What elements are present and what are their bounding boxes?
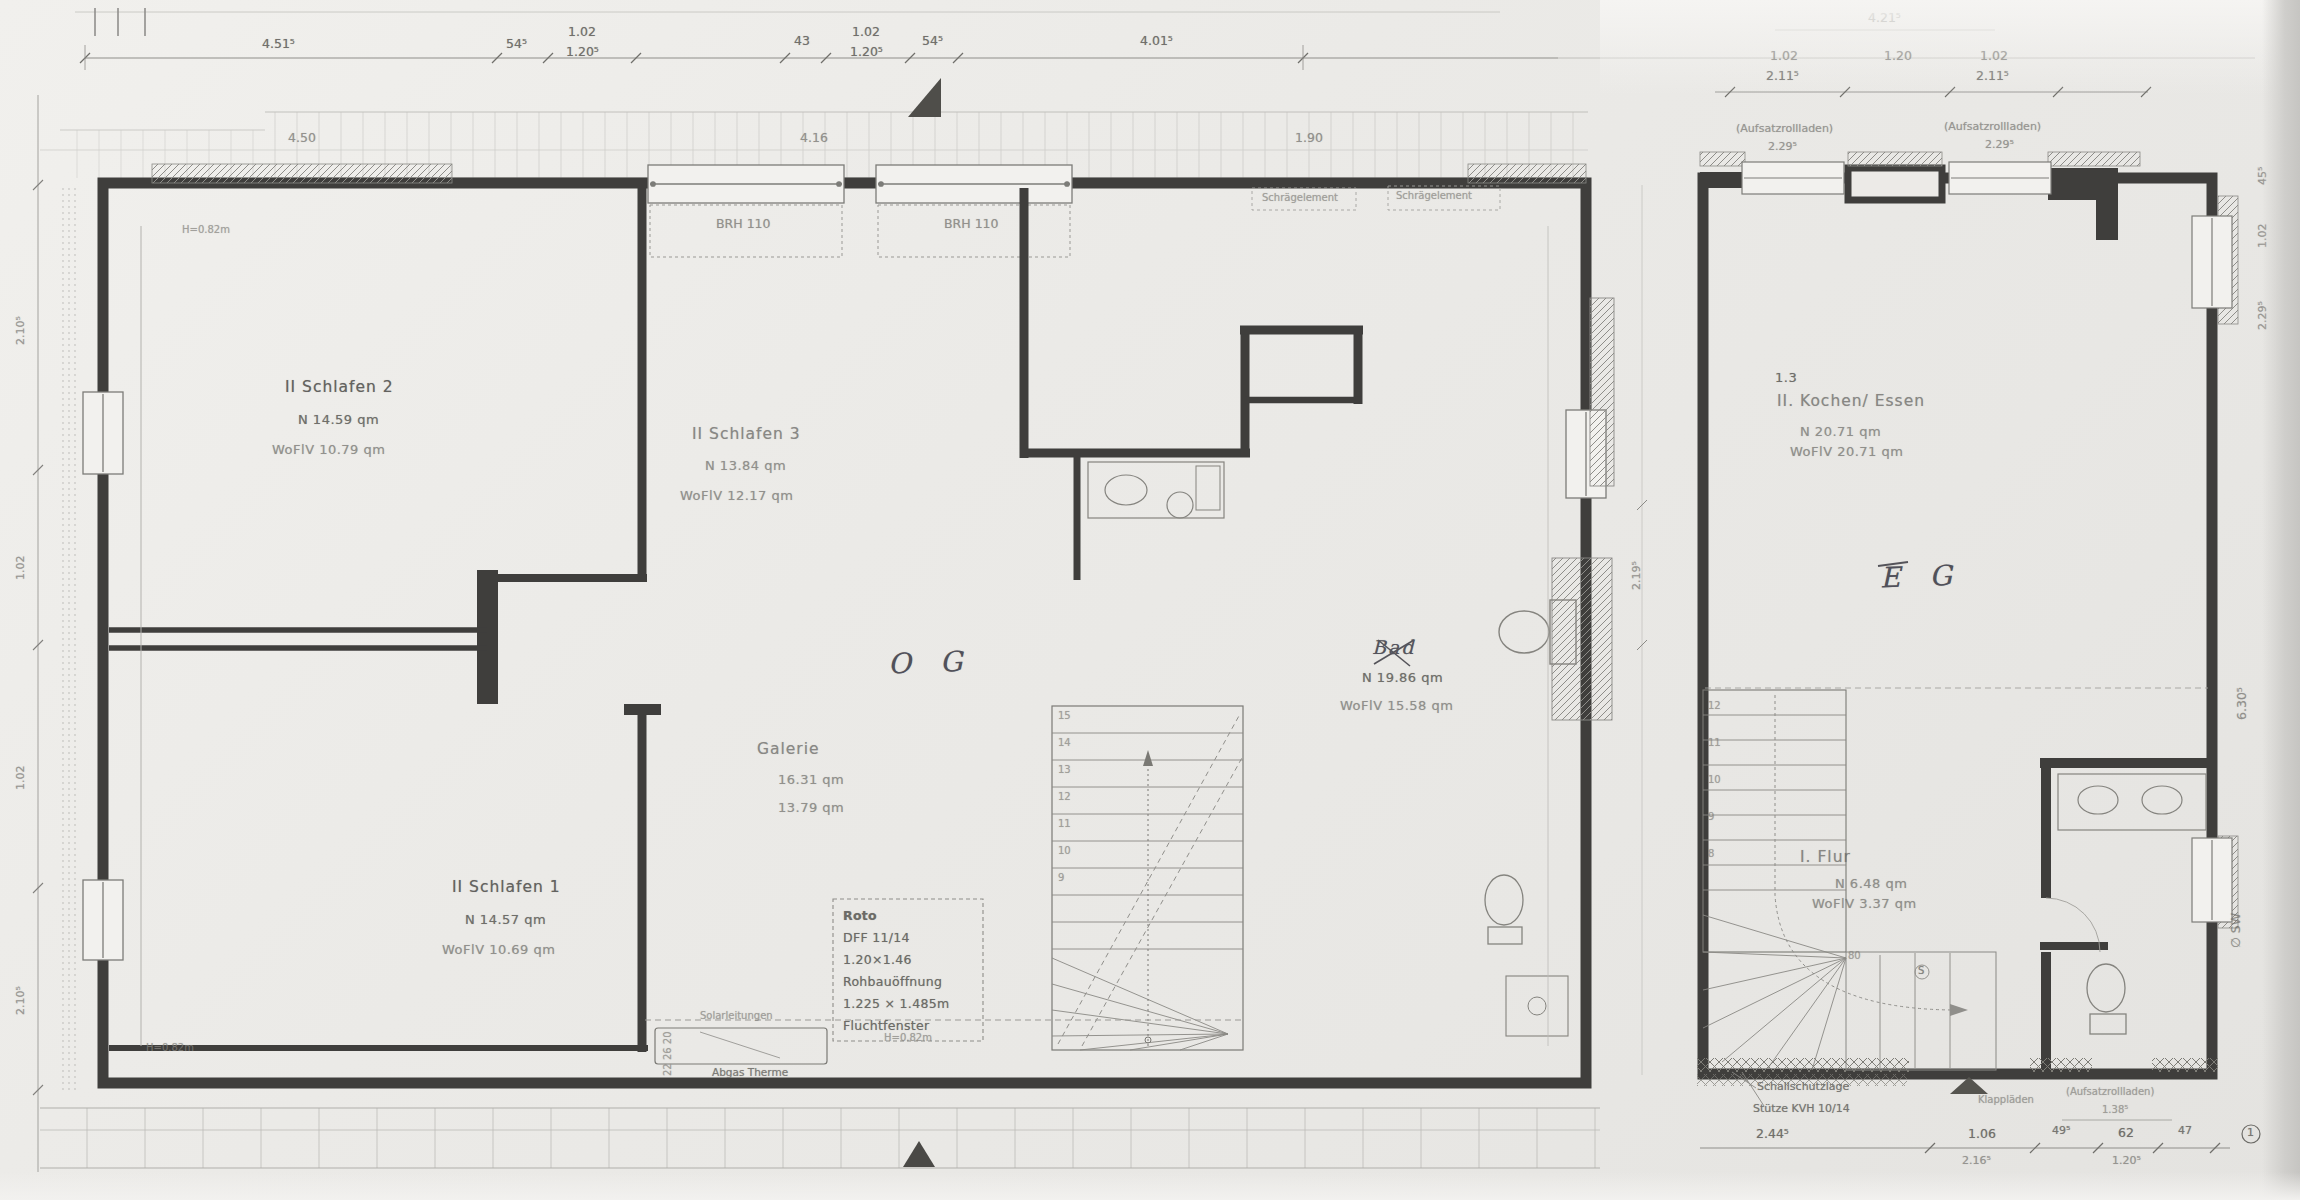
og-room-schlafen2-name: II Schlafen 2 bbox=[285, 378, 394, 396]
og-dim-top-1: 4.51⁵ bbox=[262, 36, 295, 51]
roto-note-line3: 1.20×1.46 bbox=[843, 952, 912, 967]
eg-stair-step-8: 8 bbox=[1708, 848, 1714, 859]
eg-dim-bottom-3: 49⁵ bbox=[2052, 1124, 2070, 1137]
eg-note-schallschutz-2: Stütze KVH 10/14 bbox=[1753, 1102, 1850, 1115]
mid-dimension-column bbox=[1637, 185, 1647, 1075]
eg-dim-right-2: 1.02 bbox=[2256, 224, 2269, 249]
eg-stair-step-11: 11 bbox=[1708, 737, 1721, 748]
eg-dim-top-row1: 4.21⁵ bbox=[1868, 10, 1901, 25]
og-room-schlafen3-woflv: WoFlV 12.17 qm bbox=[680, 488, 793, 503]
og-room-schlafen1-name: II Schlafen 1 bbox=[452, 878, 561, 896]
eg-dim-bottom-row2-1: 2.16⁵ bbox=[1962, 1154, 1991, 1167]
roto-note-line6: Fluchtfenster bbox=[843, 1018, 929, 1033]
og-note-kniestock-left-top: H=0.82m bbox=[182, 224, 230, 235]
eg-stair-note-s: S bbox=[1918, 965, 1924, 976]
eg-interior-walls bbox=[1705, 688, 2212, 1074]
og-room-schlafen1-area: N 14.57 qm bbox=[465, 912, 546, 927]
og-room-bad-area: N 19.86 qm bbox=[1362, 670, 1443, 685]
eg-room-kochen-woflv: WoFlV 20.71 qm bbox=[1790, 444, 1903, 459]
og-stair-step-13: 13 bbox=[1058, 764, 1071, 775]
og-dim-top-4: 43 bbox=[794, 33, 810, 48]
eg-top-dimension-lines bbox=[1715, 30, 2151, 97]
eg-windows bbox=[1742, 162, 2232, 922]
og-room-galerie-name: Galerie bbox=[757, 740, 820, 758]
eg-room-kochen-area: N 20.71 qm bbox=[1800, 424, 1881, 439]
roto-note-line2: DFF 11/14 bbox=[843, 930, 910, 945]
og-room-schlafen3-area: N 13.84 qm bbox=[705, 458, 786, 473]
og-dim-top-6: 54⁵ bbox=[922, 33, 943, 48]
og-room-schlafen2-area: N 14.59 qm bbox=[298, 412, 379, 427]
og-margins bbox=[33, 78, 1600, 1172]
eg-dim-right-1: 45⁵ bbox=[2256, 167, 2269, 185]
eg-dim-bottom-1: 2.44⁵ bbox=[1756, 1126, 1789, 1141]
eg-stair-step-10: 10 bbox=[1708, 774, 1721, 785]
eg-dim-bottom-4: 62 bbox=[2118, 1125, 2134, 1140]
eg-rollladen-dim-1: 2.29⁵ bbox=[1768, 140, 1797, 153]
eg-circle-mark: 1 bbox=[2247, 1126, 2254, 1139]
og-dim-left-3: 1.02 bbox=[14, 766, 27, 791]
og-room-schlafen3-name: II Schlafen 3 bbox=[692, 425, 801, 443]
eg-stair-step-12: 12 bbox=[1708, 700, 1721, 711]
og-roof-label-2: Schrägelement bbox=[1396, 190, 1472, 201]
og-note-kniestock-left-bottom: H=0.82m bbox=[146, 1042, 194, 1053]
eg-sw-label: ∅ SW bbox=[2228, 913, 2243, 948]
eg-dim-top-3a: 1.02 bbox=[1980, 48, 2008, 63]
eg-rollladen-label-2: (Aufsatzrollladen) bbox=[1944, 120, 2041, 133]
eg-room-flur-woflv: WoFlV 3.37 qm bbox=[1812, 896, 1917, 911]
og-note-solar: Solarleitungen bbox=[700, 1010, 773, 1021]
og-window-label-1: BRH 110 bbox=[716, 216, 771, 231]
eg-dim-right-3: 2.29⁵ bbox=[2256, 301, 2269, 330]
eg-walls bbox=[1700, 152, 2238, 1074]
eg-title-handwritten: E G bbox=[1879, 559, 1962, 595]
eg-note-klapp: Klappläden bbox=[1978, 1094, 2034, 1105]
eg-dim-top-1a: 1.02 bbox=[1770, 48, 1798, 63]
roto-note-line4: Rohbauöffnung bbox=[843, 974, 942, 989]
og-dim-top-7: 4.01⁵ bbox=[1140, 33, 1173, 48]
og-dim-top-3b: 1.20⁵ bbox=[566, 44, 599, 59]
og-dim-left-2: 1.02 bbox=[14, 556, 27, 581]
eg-dim-right-4: 6.30⁵ bbox=[2234, 687, 2249, 720]
eg-bath-fixtures bbox=[2058, 774, 2206, 1034]
eg-room-kochen-name: II. Kochen/ Essen bbox=[1777, 392, 1925, 410]
og-stair-step-10: 10 bbox=[1058, 845, 1071, 856]
eg-dim-bottom-2: 1.06 bbox=[1968, 1126, 1996, 1141]
og-dim-left-4: 2.10⁵ bbox=[14, 986, 27, 1015]
og-dim-top-2: 54⁵ bbox=[506, 36, 527, 51]
eg-note-schallschutz-1: Schallschutzlage bbox=[1757, 1080, 1849, 1093]
og-stair-step-11: 11 bbox=[1058, 818, 1071, 829]
og-bath-fixtures bbox=[1088, 462, 1576, 1036]
og-note-therme: Abgas Therme bbox=[712, 1066, 788, 1078]
og-dim-top-5b: 1.20⁵ bbox=[850, 44, 883, 59]
og-window-label-2: BRH 110 bbox=[944, 216, 999, 231]
eg-note-rollladen-bottom: (Aufsatzrollladen) bbox=[2066, 1086, 2154, 1097]
og-stair-step-14: 14 bbox=[1058, 737, 1071, 748]
og-dim-top-5a: 1.02 bbox=[852, 24, 880, 39]
eg-rollladen-label-1: (Aufsatzrollladen) bbox=[1736, 122, 1833, 135]
eg-dim-top-3b: 2.11⁵ bbox=[1976, 68, 2009, 83]
eg-dim-top-2a: 1.20 bbox=[1884, 48, 1912, 63]
og-stair-step-12: 12 bbox=[1058, 791, 1071, 802]
mid-dim-label: 2.19⁵ bbox=[1630, 561, 1643, 590]
og-windows bbox=[83, 165, 1606, 960]
eg-dim-bottom-5: 47 bbox=[2178, 1124, 2192, 1137]
eg-stair-note-80: 80 bbox=[1848, 950, 1861, 961]
og-dim-band-1: 4.50 bbox=[288, 130, 316, 145]
og-note-kniestock-mid: H=0.82m bbox=[884, 1032, 932, 1043]
eg-dim-bottom-row2-2: 1.20⁵ bbox=[2112, 1154, 2141, 1167]
og-stair-step-9: 9 bbox=[1058, 872, 1064, 883]
og-room-schlafen1-woflv: WoFlV 10.69 qm bbox=[442, 942, 555, 957]
og-dim-top-3a: 1.02 bbox=[568, 24, 596, 39]
eg-room-kochen-code: 1.3 bbox=[1775, 370, 1797, 385]
og-room-bad-name-handwritten: Bad bbox=[1372, 636, 1415, 658]
og-title-handwritten: O G bbox=[887, 645, 972, 681]
og-dim-band-2: 4.16 bbox=[800, 130, 828, 145]
eg-dim-top-1b: 2.11⁵ bbox=[1766, 68, 1799, 83]
og-room-bad-woflv: WoFlV 15.58 qm bbox=[1340, 698, 1453, 713]
og-note-therme-dim: 22 26 20 bbox=[662, 1031, 673, 1076]
roto-note-line1: Roto bbox=[843, 908, 877, 923]
og-dim-left-1: 2.10⁵ bbox=[14, 316, 27, 345]
floorplan-linework bbox=[0, 0, 2300, 1200]
og-room-galerie-woflv: 13.79 qm bbox=[778, 800, 844, 815]
eg-rollladen-dim-2: 2.29⁵ bbox=[1985, 138, 2014, 151]
og-roof-label-1: Schrägelement bbox=[1262, 192, 1338, 203]
og-room-galerie-area: 16.31 qm bbox=[778, 772, 844, 787]
eg-room-flur-name: I. Flur bbox=[1800, 848, 1851, 866]
roto-note-line5: 1.225 × 1.485m bbox=[843, 996, 949, 1011]
og-room-schlafen2-woflv: WoFlV 10.79 qm bbox=[272, 442, 385, 457]
og-walls bbox=[92, 164, 1597, 1083]
eg-stair-step-9: 9 bbox=[1708, 811, 1714, 822]
og-stair-step-15: 15 bbox=[1058, 710, 1071, 721]
eg-room-flur-area: N 6.48 qm bbox=[1835, 876, 1907, 891]
eg-dim-rollladen-bottom: 1.38⁵ bbox=[2102, 1104, 2128, 1115]
og-dim-band-3: 1.90 bbox=[1295, 130, 1323, 145]
og-stairs bbox=[1052, 706, 1243, 1050]
floorplan-scan: II Schlafen 2 N 14.59 qm WoFlV 10.79 qm … bbox=[0, 0, 2300, 1200]
